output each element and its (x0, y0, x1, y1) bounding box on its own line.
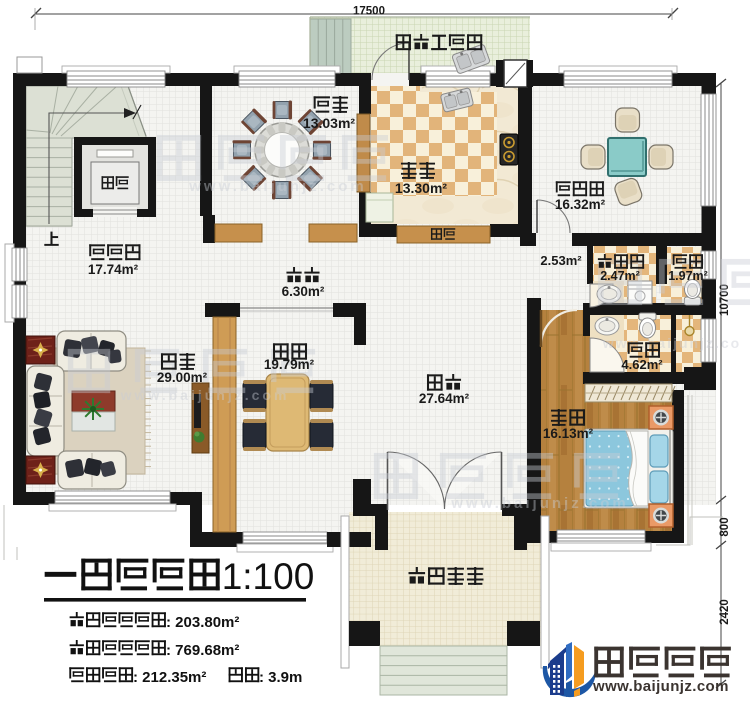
svg-text:1:100: 1:100 (222, 556, 315, 597)
svg-text:1.97m²: 1.97m² (668, 269, 708, 283)
svg-text:www.baijunjz.com: www.baijunjz.com (188, 178, 366, 195)
svg-text:www.baijunjz.com: www.baijunjz.com (120, 387, 290, 403)
svg-text:19.79m²: 19.79m² (264, 357, 315, 372)
svg-text:17500: 17500 (353, 6, 385, 18)
svg-text:www.baijunjz.com: www.baijunjz.com (450, 495, 628, 512)
svg-text:2.47m²: 2.47m² (600, 269, 640, 283)
svg-text:: 203.80m²: : 203.80m² (166, 614, 239, 631)
svg-text:www.baijunjz.co: www.baijunjz.co (602, 335, 741, 351)
svg-text:2420: 2420 (719, 599, 731, 625)
svg-text:27.64m²: 27.64m² (419, 391, 470, 406)
svg-text:800: 800 (719, 517, 731, 536)
svg-text:4.62m²: 4.62m² (621, 357, 663, 372)
svg-text:www.baijunjz.com: www.baijunjz.com (592, 678, 729, 695)
svg-text:29.00m²: 29.00m² (157, 370, 208, 385)
svg-text:: 769.68m²: : 769.68m² (166, 642, 239, 659)
svg-text:16.32m²: 16.32m² (555, 197, 606, 212)
svg-text:: 212.35m²: : 212.35m² (133, 669, 206, 686)
svg-text:16.13m²: 16.13m² (543, 426, 594, 441)
svg-text:2.53m²: 2.53m² (540, 253, 582, 268)
svg-text:6.30m²: 6.30m² (282, 284, 325, 299)
svg-text:17.74m²: 17.74m² (88, 262, 139, 277)
svg-text:: 3.9m: : 3.9m (259, 669, 302, 686)
svg-text:13.03m²: 13.03m² (303, 115, 355, 131)
svg-text:13.30m²: 13.30m² (395, 180, 447, 196)
